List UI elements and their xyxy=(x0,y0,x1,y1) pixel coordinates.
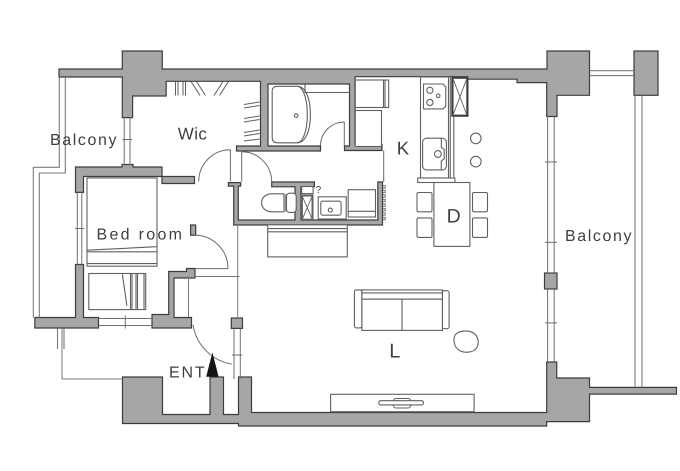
svg-text:Wic: Wic xyxy=(178,125,208,144)
svg-text:Balcony: Balcony xyxy=(50,132,118,149)
svg-text:K: K xyxy=(397,137,411,158)
svg-text:D: D xyxy=(447,205,463,227)
svg-text:Bed room: Bed room xyxy=(97,227,185,244)
svg-text:Balcony: Balcony xyxy=(565,228,633,245)
svg-text:ENT: ENT xyxy=(169,364,206,381)
svg-text:L: L xyxy=(389,341,402,363)
svg-text:?: ? xyxy=(316,185,322,196)
